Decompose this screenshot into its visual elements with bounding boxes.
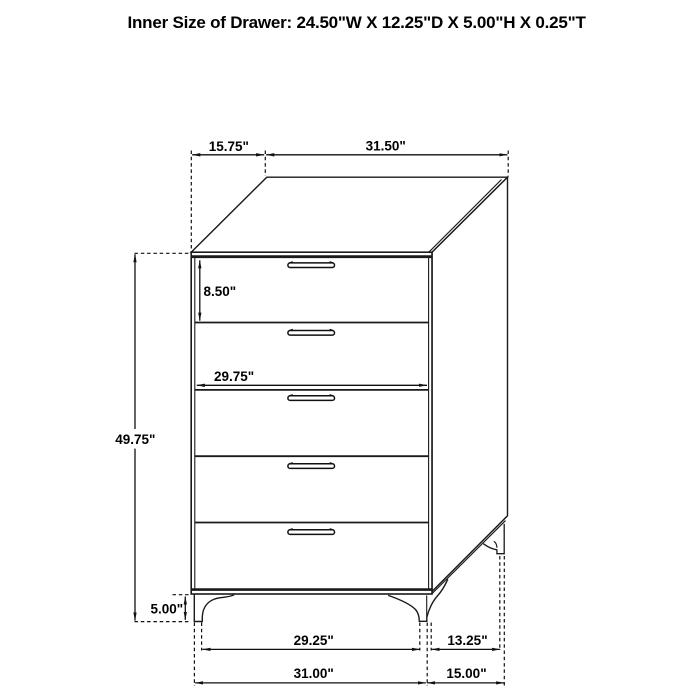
svg-text:29.25": 29.25" xyxy=(294,633,334,648)
svg-text:13.25": 13.25" xyxy=(447,633,487,648)
svg-text:31.00": 31.00" xyxy=(294,666,334,681)
svg-text:8.50": 8.50" xyxy=(204,284,237,299)
svg-text:15.00": 15.00" xyxy=(446,666,486,681)
svg-text:29.75": 29.75" xyxy=(214,369,254,384)
svg-text:5.00": 5.00" xyxy=(151,602,184,617)
svg-text:Inner Size of Drawer: 24.50"W: Inner Size of Drawer: 24.50"W X 12.25"D … xyxy=(128,13,587,32)
svg-text:31.50": 31.50" xyxy=(366,139,406,154)
svg-text:49.75": 49.75" xyxy=(115,432,155,447)
svg-text:15.75": 15.75" xyxy=(209,139,249,154)
